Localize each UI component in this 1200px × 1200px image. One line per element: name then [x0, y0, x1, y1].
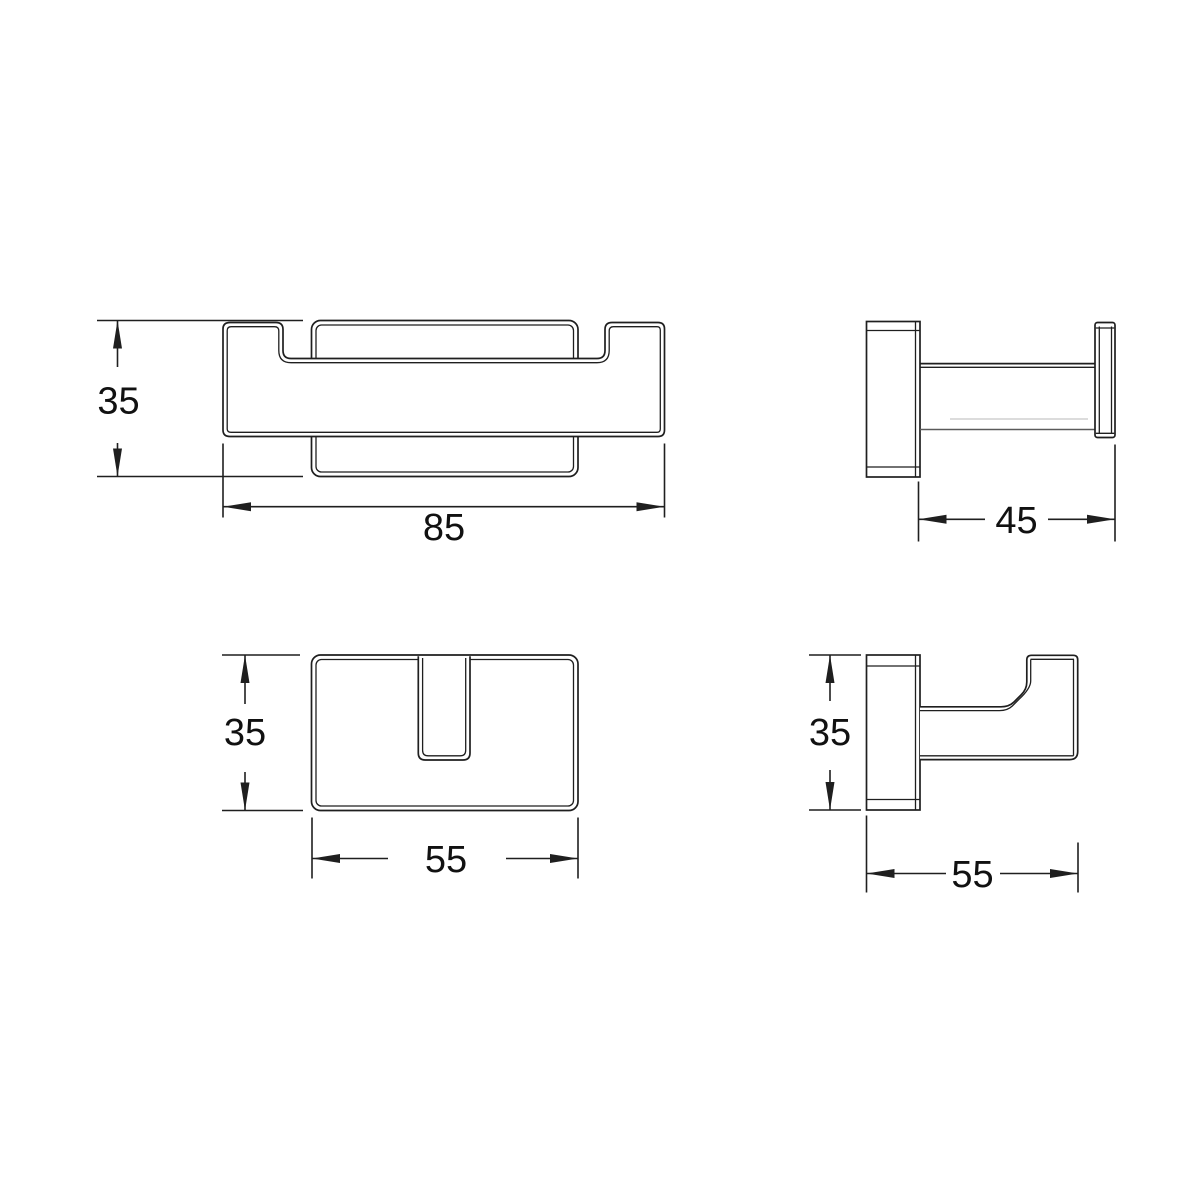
dimension-label: 85	[423, 507, 465, 549]
arrowhead-left-icon	[312, 854, 340, 863]
arrowhead-up-icon	[113, 321, 122, 349]
dimension-height-35: 35	[809, 655, 861, 810]
arrowhead-left-icon	[867, 869, 895, 878]
arrowhead-right-icon	[1050, 869, 1078, 878]
arrowhead-left-icon	[223, 502, 251, 511]
arrowhead-down-icon	[113, 449, 122, 477]
arrowhead-left-icon	[919, 515, 947, 524]
arrowhead-right-icon	[550, 854, 578, 863]
wallplate-outline	[867, 322, 921, 478]
dimension-height-35: 35	[222, 655, 303, 811]
dimension-label: 45	[995, 500, 1037, 542]
arrowhead-right-icon	[1087, 515, 1115, 524]
side-view-single-hook: 35 55	[809, 655, 1078, 896]
hook-profile-outline	[920, 655, 1078, 759]
arrowhead-down-icon	[241, 783, 250, 811]
wallplate-outline	[867, 655, 921, 810]
dimension-label: 35	[97, 381, 139, 423]
dimension-label: 35	[224, 712, 266, 754]
arrowhead-up-icon	[826, 655, 835, 683]
front-view-double-hook: 35 85	[97, 321, 665, 550]
dimension-label: 55	[951, 854, 993, 896]
hook-lip-face	[418, 656, 470, 760]
front-view-single-hook: 35 55	[222, 655, 578, 881]
dimension-depth-45: 45	[919, 445, 1116, 542]
arrowhead-right-icon	[637, 502, 665, 511]
dimension-depth-55: 55	[867, 816, 1079, 897]
arrowhead-up-icon	[241, 655, 250, 683]
side-view-double-hook: 45	[867, 322, 1116, 542]
drawing-page: 35 85	[0, 0, 1200, 1200]
technical-drawing-canvas: 35 85	[0, 0, 1200, 1200]
dimension-label: 55	[425, 839, 467, 881]
dimension-width-55: 55	[312, 818, 578, 882]
arrowhead-down-icon	[826, 782, 835, 810]
dimension-label: 35	[809, 712, 851, 754]
